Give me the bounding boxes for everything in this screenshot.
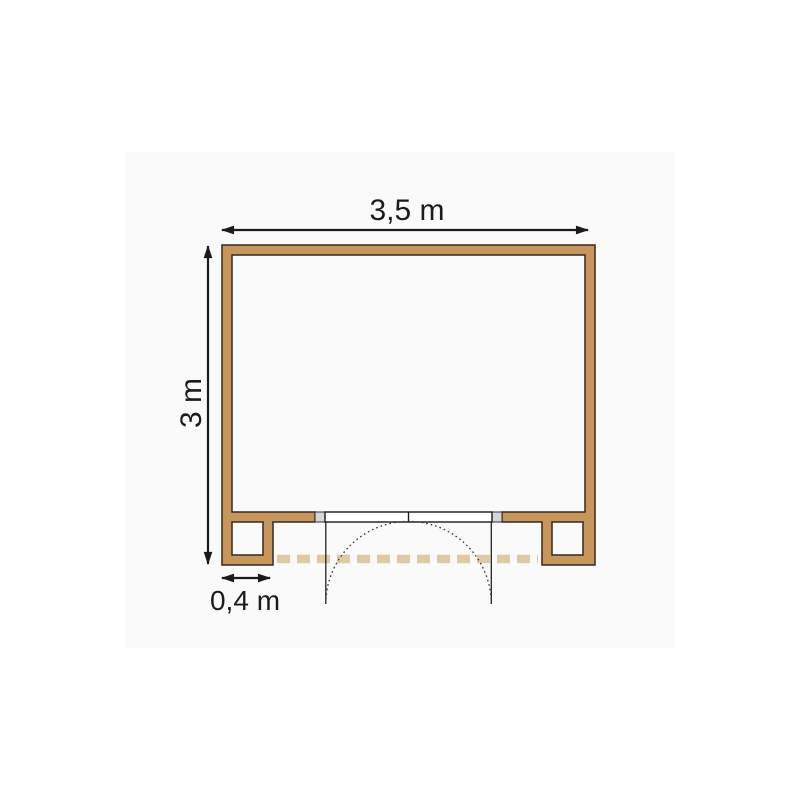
width-dimension-label: 3,5 m [369,196,444,226]
door-jamb-right [492,512,502,522]
post-width-dimension-label: 0,4 m [210,587,280,615]
page: 3,5 m 3 m 0,4 m [0,0,800,800]
door-jamb-left [315,512,325,522]
floor-plan-image: 3,5 m 3 m 0,4 m [126,152,674,648]
depth-dimension-label: 3 m [177,378,207,428]
